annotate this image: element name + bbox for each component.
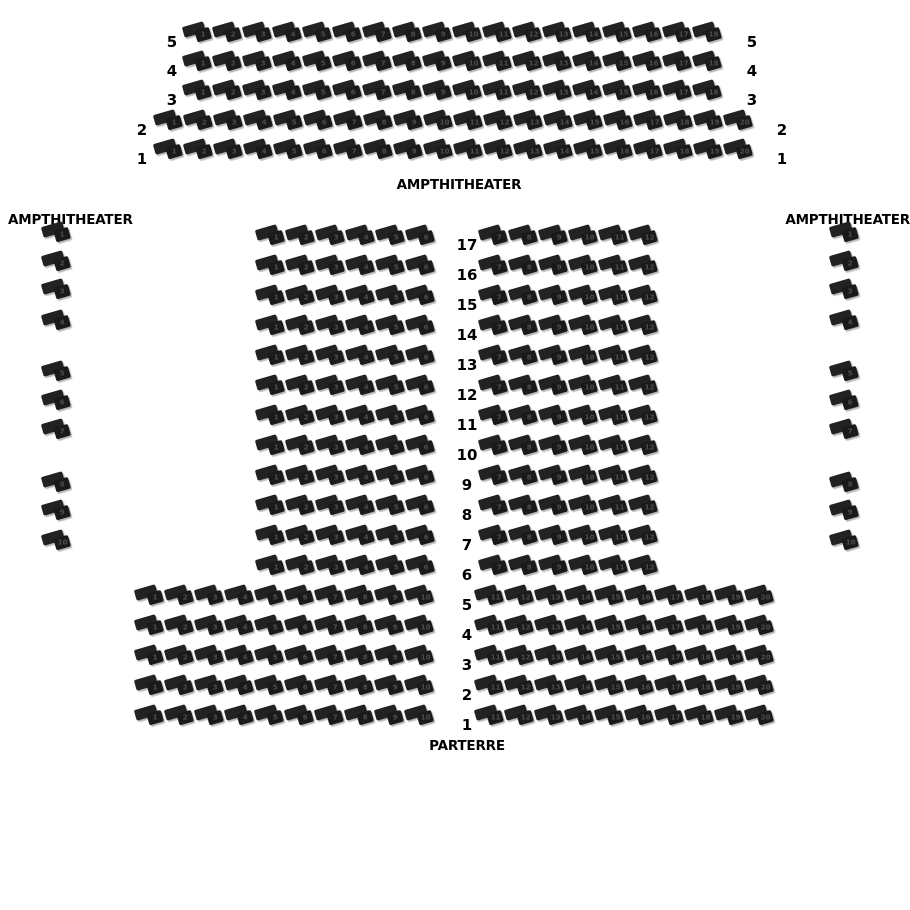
seat-cushion: 12 <box>640 440 658 456</box>
seat-number: 7 <box>497 564 502 571</box>
seat-number: 2 <box>848 260 853 267</box>
seat-number: 1 <box>60 231 65 238</box>
seat-number: 10 <box>57 539 67 546</box>
row-label-right: 4 <box>747 62 757 80</box>
seat-number: 7 <box>497 324 502 331</box>
seat-cushion: 1 <box>841 227 859 243</box>
seat-icon: 12 <box>624 339 664 373</box>
seat[interactable]: 6 <box>404 553 438 579</box>
seat-number: 11 <box>614 564 624 571</box>
seat-number: 10 <box>845 539 855 546</box>
seat-number: 3 <box>334 234 339 241</box>
seat-number: 17 <box>670 684 680 691</box>
seat-number: 18 <box>708 89 718 96</box>
seat-icon: 6 <box>401 339 441 373</box>
seat-number: 3 <box>213 714 218 721</box>
row-label-center: 7 <box>462 536 472 554</box>
seat-number: 6 <box>424 324 429 331</box>
seat-number: 15 <box>589 119 599 126</box>
seat-number: 11 <box>614 474 624 481</box>
seat-number: 6 <box>351 89 356 96</box>
seat-number: 7 <box>381 60 386 67</box>
seat-number: 4 <box>364 504 369 511</box>
seat-number: 2 <box>304 354 309 361</box>
seat-number: 6 <box>424 444 429 451</box>
seat-icon: 5 <box>37 355 77 389</box>
seat-number: 18 <box>700 684 710 691</box>
seat-number: 10 <box>420 654 430 661</box>
seat-number: 11 <box>614 294 624 301</box>
seat-number: 3 <box>334 354 339 361</box>
seat-number: 10 <box>468 89 478 96</box>
seat-cushion: 4 <box>53 315 71 331</box>
seat-number: 8 <box>527 234 532 241</box>
seat[interactable]: 20 <box>743 643 777 669</box>
seat-number: 1 <box>201 31 206 38</box>
seat[interactable]: 6 <box>404 463 438 489</box>
seat-number: 7 <box>497 354 502 361</box>
seat-number: 6 <box>424 234 429 241</box>
seat-number: 7 <box>352 148 357 155</box>
seat-number: 10 <box>584 474 594 481</box>
seat-number: 9 <box>557 534 562 541</box>
seat[interactable]: 10 <box>403 703 437 729</box>
seat[interactable]: 20 <box>743 583 777 609</box>
seat-number: 9 <box>441 31 446 38</box>
seat[interactable]: 2 <box>828 249 862 275</box>
seat-number: 2 <box>304 324 309 331</box>
seat-number: 1 <box>201 60 206 67</box>
seat-icon: 10 <box>400 579 440 613</box>
seat[interactable]: 5 <box>828 359 862 385</box>
seat-number: 12 <box>528 89 538 96</box>
seat-number: 16 <box>619 119 629 126</box>
seat-number: 19 <box>730 624 740 631</box>
seat-number: 13 <box>558 60 568 67</box>
seat[interactable]: 12 <box>627 283 661 309</box>
seat-number: 8 <box>527 264 532 271</box>
seat-cushion: 12 <box>640 470 658 486</box>
seat-icon: 20 <box>719 133 759 167</box>
seat-number: 17 <box>649 148 659 155</box>
seat-cushion: 12 <box>640 560 658 576</box>
seat-icon: 12 <box>624 279 664 313</box>
seat-number: 5 <box>321 31 326 38</box>
seat-number: 9 <box>557 294 562 301</box>
seat-number: 14 <box>588 89 598 96</box>
seat-number: 11 <box>614 354 624 361</box>
seat-number: 7 <box>497 444 502 451</box>
seat-number: 2 <box>304 504 309 511</box>
seat[interactable]: 6 <box>404 283 438 309</box>
seat-number: 7 <box>497 414 502 421</box>
seat-cushion: 3 <box>53 284 71 300</box>
seat-number: 9 <box>557 444 562 451</box>
seat-number: 1 <box>274 264 279 271</box>
seat-number: 1 <box>274 414 279 421</box>
seat-number: 5 <box>273 594 278 601</box>
seat-icon: 20 <box>740 579 780 613</box>
seat[interactable]: 12 <box>627 493 661 519</box>
seat-cushion: 6 <box>417 230 435 246</box>
seat[interactable]: 1 <box>828 220 862 246</box>
seat[interactable]: 1 <box>40 220 74 246</box>
seat[interactable]: 6 <box>404 373 438 399</box>
seat[interactable]: 9 <box>828 498 862 524</box>
seat-number: 16 <box>648 31 658 38</box>
seat[interactable]: 3 <box>828 277 862 303</box>
seat-number: 14 <box>580 624 590 631</box>
seat-number: 6 <box>303 594 308 601</box>
seat-number: 12 <box>528 31 538 38</box>
seat-icon: 12 <box>624 549 664 583</box>
seat[interactable]: 6 <box>40 388 74 414</box>
seat-number: 11 <box>614 414 624 421</box>
seat[interactable]: 6 <box>404 493 438 519</box>
seat[interactable]: 5 <box>40 359 74 385</box>
seat-number: 17 <box>678 60 688 67</box>
seat[interactable]: 7 <box>40 417 74 443</box>
seat-cushion: 12 <box>640 230 658 246</box>
seat-number: 4 <box>291 60 296 67</box>
seat-icon: 20 <box>719 104 759 138</box>
seat[interactable]: 10 <box>403 673 437 699</box>
seating-chart: AMPTHITHEATER AMPTHITHEATER AMPTHITHEATE… <box>0 0 910 910</box>
seat-number: 15 <box>618 31 628 38</box>
seat-number: 12 <box>520 654 530 661</box>
seat-number: 12 <box>644 384 654 391</box>
row-label-left: 4 <box>167 62 177 80</box>
seat-number: 4 <box>364 534 369 541</box>
seat-icon: 1 <box>825 216 865 250</box>
seat-number: 5 <box>394 414 399 421</box>
seat[interactable]: 12 <box>627 523 661 549</box>
seat-icon: 12 <box>624 519 664 553</box>
seat-cushion: 20 <box>756 680 774 696</box>
seat[interactable]: 2 <box>40 249 74 275</box>
seat-number: 2 <box>304 444 309 451</box>
seat[interactable]: 12 <box>627 223 661 249</box>
seat-number: 8 <box>382 119 387 126</box>
seat-number: 13 <box>558 31 568 38</box>
seat[interactable]: 6 <box>404 403 438 429</box>
seat-number: 4 <box>364 354 369 361</box>
seat-number: 1 <box>153 624 158 631</box>
seat-number: 17 <box>678 31 688 38</box>
seat-number: 6 <box>424 384 429 391</box>
seat-number: 11 <box>614 534 624 541</box>
seat-number: 16 <box>648 89 658 96</box>
seat-number: 11 <box>490 714 500 721</box>
seat-number: 1 <box>201 89 206 96</box>
seat-number: 16 <box>648 60 658 67</box>
seat-number: 11 <box>614 234 624 241</box>
seat-number: 4 <box>243 594 248 601</box>
row-label-center: 11 <box>457 416 478 434</box>
seat[interactable]: 6 <box>404 433 438 459</box>
seat-icon: 10 <box>400 699 440 733</box>
seat[interactable]: 6 <box>404 523 438 549</box>
seat[interactable]: 12 <box>627 313 661 339</box>
seat-number: 12 <box>644 444 654 451</box>
seat-number: 14 <box>580 594 590 601</box>
seat-number: 5 <box>394 294 399 301</box>
seat-number: 3 <box>334 534 339 541</box>
seat[interactable]: 12 <box>627 253 661 279</box>
seat[interactable]: 20 <box>722 137 756 163</box>
seat-number: 4 <box>243 714 248 721</box>
seat-number: 12 <box>520 594 530 601</box>
seat-number: 7 <box>497 384 502 391</box>
seat-number: 1 <box>274 504 279 511</box>
row-label-center: 13 <box>457 356 478 374</box>
seat[interactable]: 10 <box>403 583 437 609</box>
seat-number: 6 <box>424 564 429 571</box>
seat[interactable]: 12 <box>627 433 661 459</box>
row-label-center: 14 <box>457 326 478 344</box>
seat-icon: 12 <box>624 459 664 493</box>
seat-cushion: 10 <box>416 710 434 726</box>
seat-icon: 12 <box>624 219 664 253</box>
seat-number: 5 <box>273 684 278 691</box>
seat-number: 2 <box>304 264 309 271</box>
seat-icon: 6 <box>401 279 441 313</box>
seat-icon: 6 <box>37 384 77 418</box>
seat-number: 12 <box>499 119 509 126</box>
seat-cushion: 6 <box>417 260 435 276</box>
seat-number: 2 <box>202 148 207 155</box>
seat[interactable]: 20 <box>722 108 756 134</box>
seat-icon: 8 <box>825 466 865 500</box>
seat-number: 6 <box>60 399 65 406</box>
seat-number: 7 <box>497 534 502 541</box>
seat-number: 8 <box>527 354 532 361</box>
seat-number: 12 <box>644 294 654 301</box>
row-label-center: 6 <box>462 566 472 584</box>
seat-icon: 12 <box>624 429 664 463</box>
seat[interactable]: 10 <box>40 528 74 554</box>
seat-number: 2 <box>304 414 309 421</box>
seat-number: 10 <box>584 264 594 271</box>
seat[interactable]: 18 <box>691 49 725 75</box>
seat-number: 12 <box>520 684 530 691</box>
seat-number: 20 <box>760 594 770 601</box>
row-label-center: 10 <box>457 446 478 464</box>
seat-number: 6 <box>424 294 429 301</box>
seat-number: 8 <box>411 31 416 38</box>
seat-number: 10 <box>584 564 594 571</box>
top-amphitheater-label: AMPTHITHEATER <box>397 177 522 193</box>
seat-number: 13 <box>550 594 560 601</box>
seat-number: 11 <box>498 31 508 38</box>
seat-number: 10 <box>420 714 430 721</box>
seat-number: 4 <box>291 31 296 38</box>
seat-cushion: 10 <box>416 680 434 696</box>
seat-number: 5 <box>394 384 399 391</box>
seat-number: 3 <box>261 60 266 67</box>
seat-number: 10 <box>584 384 594 391</box>
seat-number: 7 <box>333 594 338 601</box>
seat-number: 4 <box>60 319 65 326</box>
seat[interactable]: 10 <box>828 528 862 554</box>
seat-number: 8 <box>411 89 416 96</box>
seat-number: 7 <box>381 31 386 38</box>
seat-cushion: 1 <box>53 227 71 243</box>
seat-icon: 7 <box>37 413 77 447</box>
seat-number: 15 <box>610 714 620 721</box>
seat-icon: 12 <box>624 489 664 523</box>
seat[interactable]: 18 <box>691 78 725 104</box>
seat-number: 10 <box>584 294 594 301</box>
seat-number: 9 <box>60 509 65 516</box>
seat-number: 6 <box>322 148 327 155</box>
seat-number: 8 <box>527 534 532 541</box>
seat-number: 2 <box>231 31 236 38</box>
seat-number: 10 <box>584 534 594 541</box>
seat-number: 10 <box>420 594 430 601</box>
seat[interactable]: 18 <box>691 20 725 46</box>
seat[interactable]: 3 <box>40 277 74 303</box>
seat[interactable]: 6 <box>404 253 438 279</box>
seat-cushion: 2 <box>841 256 859 272</box>
seat-number: 11 <box>469 119 479 126</box>
seat[interactable]: 10 <box>403 613 437 639</box>
seat[interactable]: 7 <box>828 417 862 443</box>
row-label-left: 1 <box>137 150 147 168</box>
seat-number: 8 <box>411 60 416 67</box>
seat-cushion: 10 <box>841 535 859 551</box>
seat-icon: 6 <box>401 489 441 523</box>
seat[interactable]: 12 <box>627 463 661 489</box>
seat-number: 2 <box>231 60 236 67</box>
row-label-center: 16 <box>457 266 478 284</box>
seat-number: 9 <box>393 654 398 661</box>
seat[interactable]: 20 <box>743 613 777 639</box>
seat-icon: 6 <box>401 399 441 433</box>
seat-cushion: 12 <box>640 290 658 306</box>
seat-number: 7 <box>60 428 65 435</box>
seat-number: 1 <box>153 714 158 721</box>
seat-number: 7 <box>497 504 502 511</box>
seat[interactable]: 9 <box>40 498 74 524</box>
seat-number: 8 <box>527 504 532 511</box>
seat-number: 6 <box>424 354 429 361</box>
seat-number: 5 <box>394 534 399 541</box>
seat-number: 7 <box>497 474 502 481</box>
seat-number: 17 <box>670 594 680 601</box>
seat-number: 3 <box>213 654 218 661</box>
seat-number: 2 <box>183 654 188 661</box>
row-label-center: 12 <box>457 386 478 404</box>
seat-number: 13 <box>550 714 560 721</box>
seat[interactable]: 4 <box>40 308 74 334</box>
seat-number: 3 <box>334 384 339 391</box>
seat-cushion: 20 <box>756 590 774 606</box>
seat-number: 8 <box>363 684 368 691</box>
seat-number: 12 <box>520 714 530 721</box>
seat[interactable]: 4 <box>828 308 862 334</box>
seat[interactable]: 12 <box>627 553 661 579</box>
seat-number: 8 <box>527 294 532 301</box>
seat-number: 16 <box>640 684 650 691</box>
seat-number: 12 <box>644 354 654 361</box>
seat-number: 6 <box>848 399 853 406</box>
seat-icon: 12 <box>624 399 664 433</box>
seat-number: 13 <box>529 119 539 126</box>
seat[interactable]: 20 <box>743 673 777 699</box>
seat-number: 4 <box>262 148 267 155</box>
seat-number: 1 <box>153 654 158 661</box>
seat-number: 9 <box>393 624 398 631</box>
seat[interactable]: 6 <box>404 343 438 369</box>
seat-number: 2 <box>304 384 309 391</box>
seat-number: 18 <box>679 148 689 155</box>
seat-number: 2 <box>202 119 207 126</box>
seat-number: 12 <box>644 534 654 541</box>
seat-number: 12 <box>644 504 654 511</box>
seat-number: 17 <box>678 89 688 96</box>
seat-number: 7 <box>333 654 338 661</box>
seat-icon: 6 <box>401 369 441 403</box>
seat-number: 5 <box>273 654 278 661</box>
seat-number: 9 <box>848 509 853 516</box>
row-label-center: 9 <box>462 476 472 494</box>
seat-number: 19 <box>730 654 740 661</box>
seat-number: 20 <box>760 684 770 691</box>
row-label-center: 3 <box>462 656 472 674</box>
seat[interactable]: 6 <box>404 313 438 339</box>
seat[interactable]: 12 <box>627 343 661 369</box>
seat-number: 11 <box>614 264 624 271</box>
seat-number: 10 <box>420 684 430 691</box>
seat-number: 2 <box>304 564 309 571</box>
seat-number: 8 <box>527 474 532 481</box>
seat-number: 3 <box>213 594 218 601</box>
seat-number: 4 <box>243 684 248 691</box>
seat-icon: 18 <box>688 45 728 79</box>
seat-number: 20 <box>760 714 770 721</box>
seat[interactable]: 6 <box>404 223 438 249</box>
seat[interactable]: 10 <box>403 643 437 669</box>
seat-number: 13 <box>529 148 539 155</box>
seat-number: 5 <box>394 564 399 571</box>
seat-number: 16 <box>640 654 650 661</box>
seat-number: 3 <box>848 288 853 295</box>
seat[interactable]: 8 <box>40 470 74 496</box>
seat-number: 1 <box>274 564 279 571</box>
seat-number: 16 <box>640 714 650 721</box>
seat[interactable]: 12 <box>627 373 661 399</box>
seat[interactable]: 8 <box>828 470 862 496</box>
seat-number: 11 <box>614 324 624 331</box>
seat[interactable]: 12 <box>627 403 661 429</box>
seat-number: 1 <box>172 119 177 126</box>
seat[interactable]: 6 <box>828 388 862 414</box>
seat-number: 14 <box>580 714 590 721</box>
seat-cushion: 9 <box>53 505 71 521</box>
seat[interactable]: 20 <box>743 703 777 729</box>
seat-number: 4 <box>364 294 369 301</box>
seat-icon: 20 <box>740 609 780 643</box>
seat-number: 10 <box>439 148 449 155</box>
seat-number: 10 <box>584 414 594 421</box>
seat-number: 13 <box>558 89 568 96</box>
seat-cushion: 18 <box>704 56 722 72</box>
seat-cushion: 10 <box>53 535 71 551</box>
seat-cushion: 12 <box>640 260 658 276</box>
seat-number: 18 <box>700 624 710 631</box>
seat-number: 10 <box>584 504 594 511</box>
